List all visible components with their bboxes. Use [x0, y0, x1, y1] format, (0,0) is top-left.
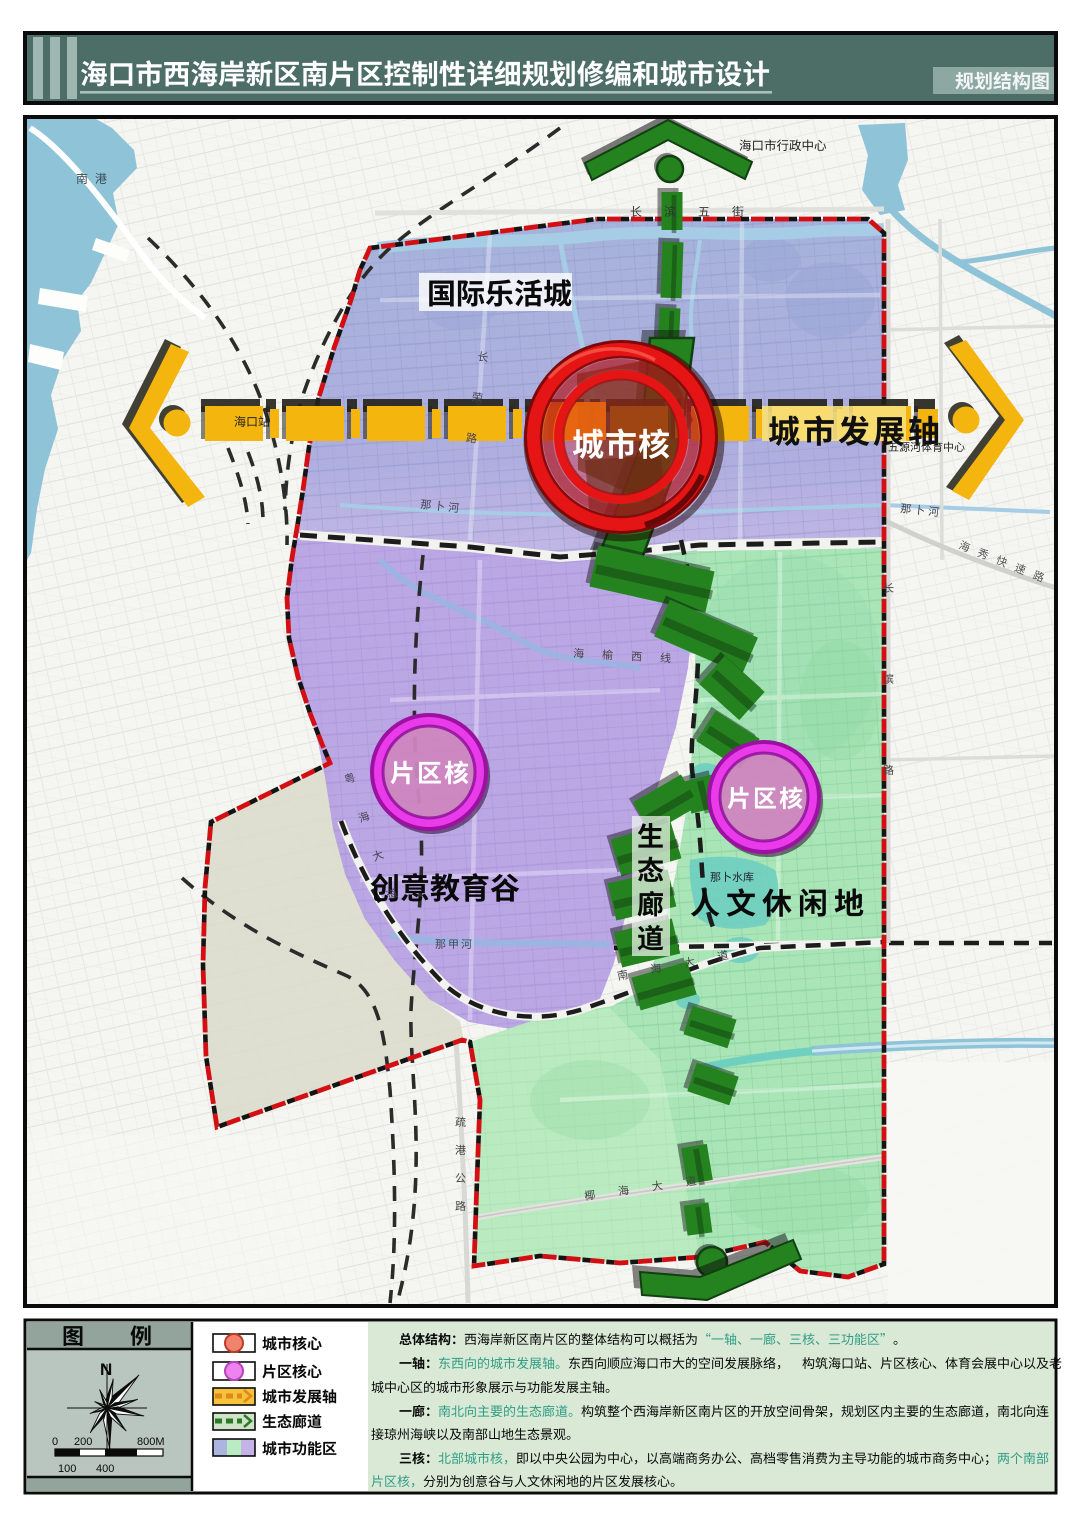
svg-text:400: 400 — [96, 1463, 114, 1475]
svg-text:N: N — [100, 1360, 112, 1379]
svg-text:200: 200 — [74, 1436, 92, 1448]
svg-text:100: 100 — [58, 1463, 76, 1475]
svg-text:0: 0 — [52, 1436, 58, 1448]
svg-text:800M: 800M — [137, 1436, 165, 1448]
